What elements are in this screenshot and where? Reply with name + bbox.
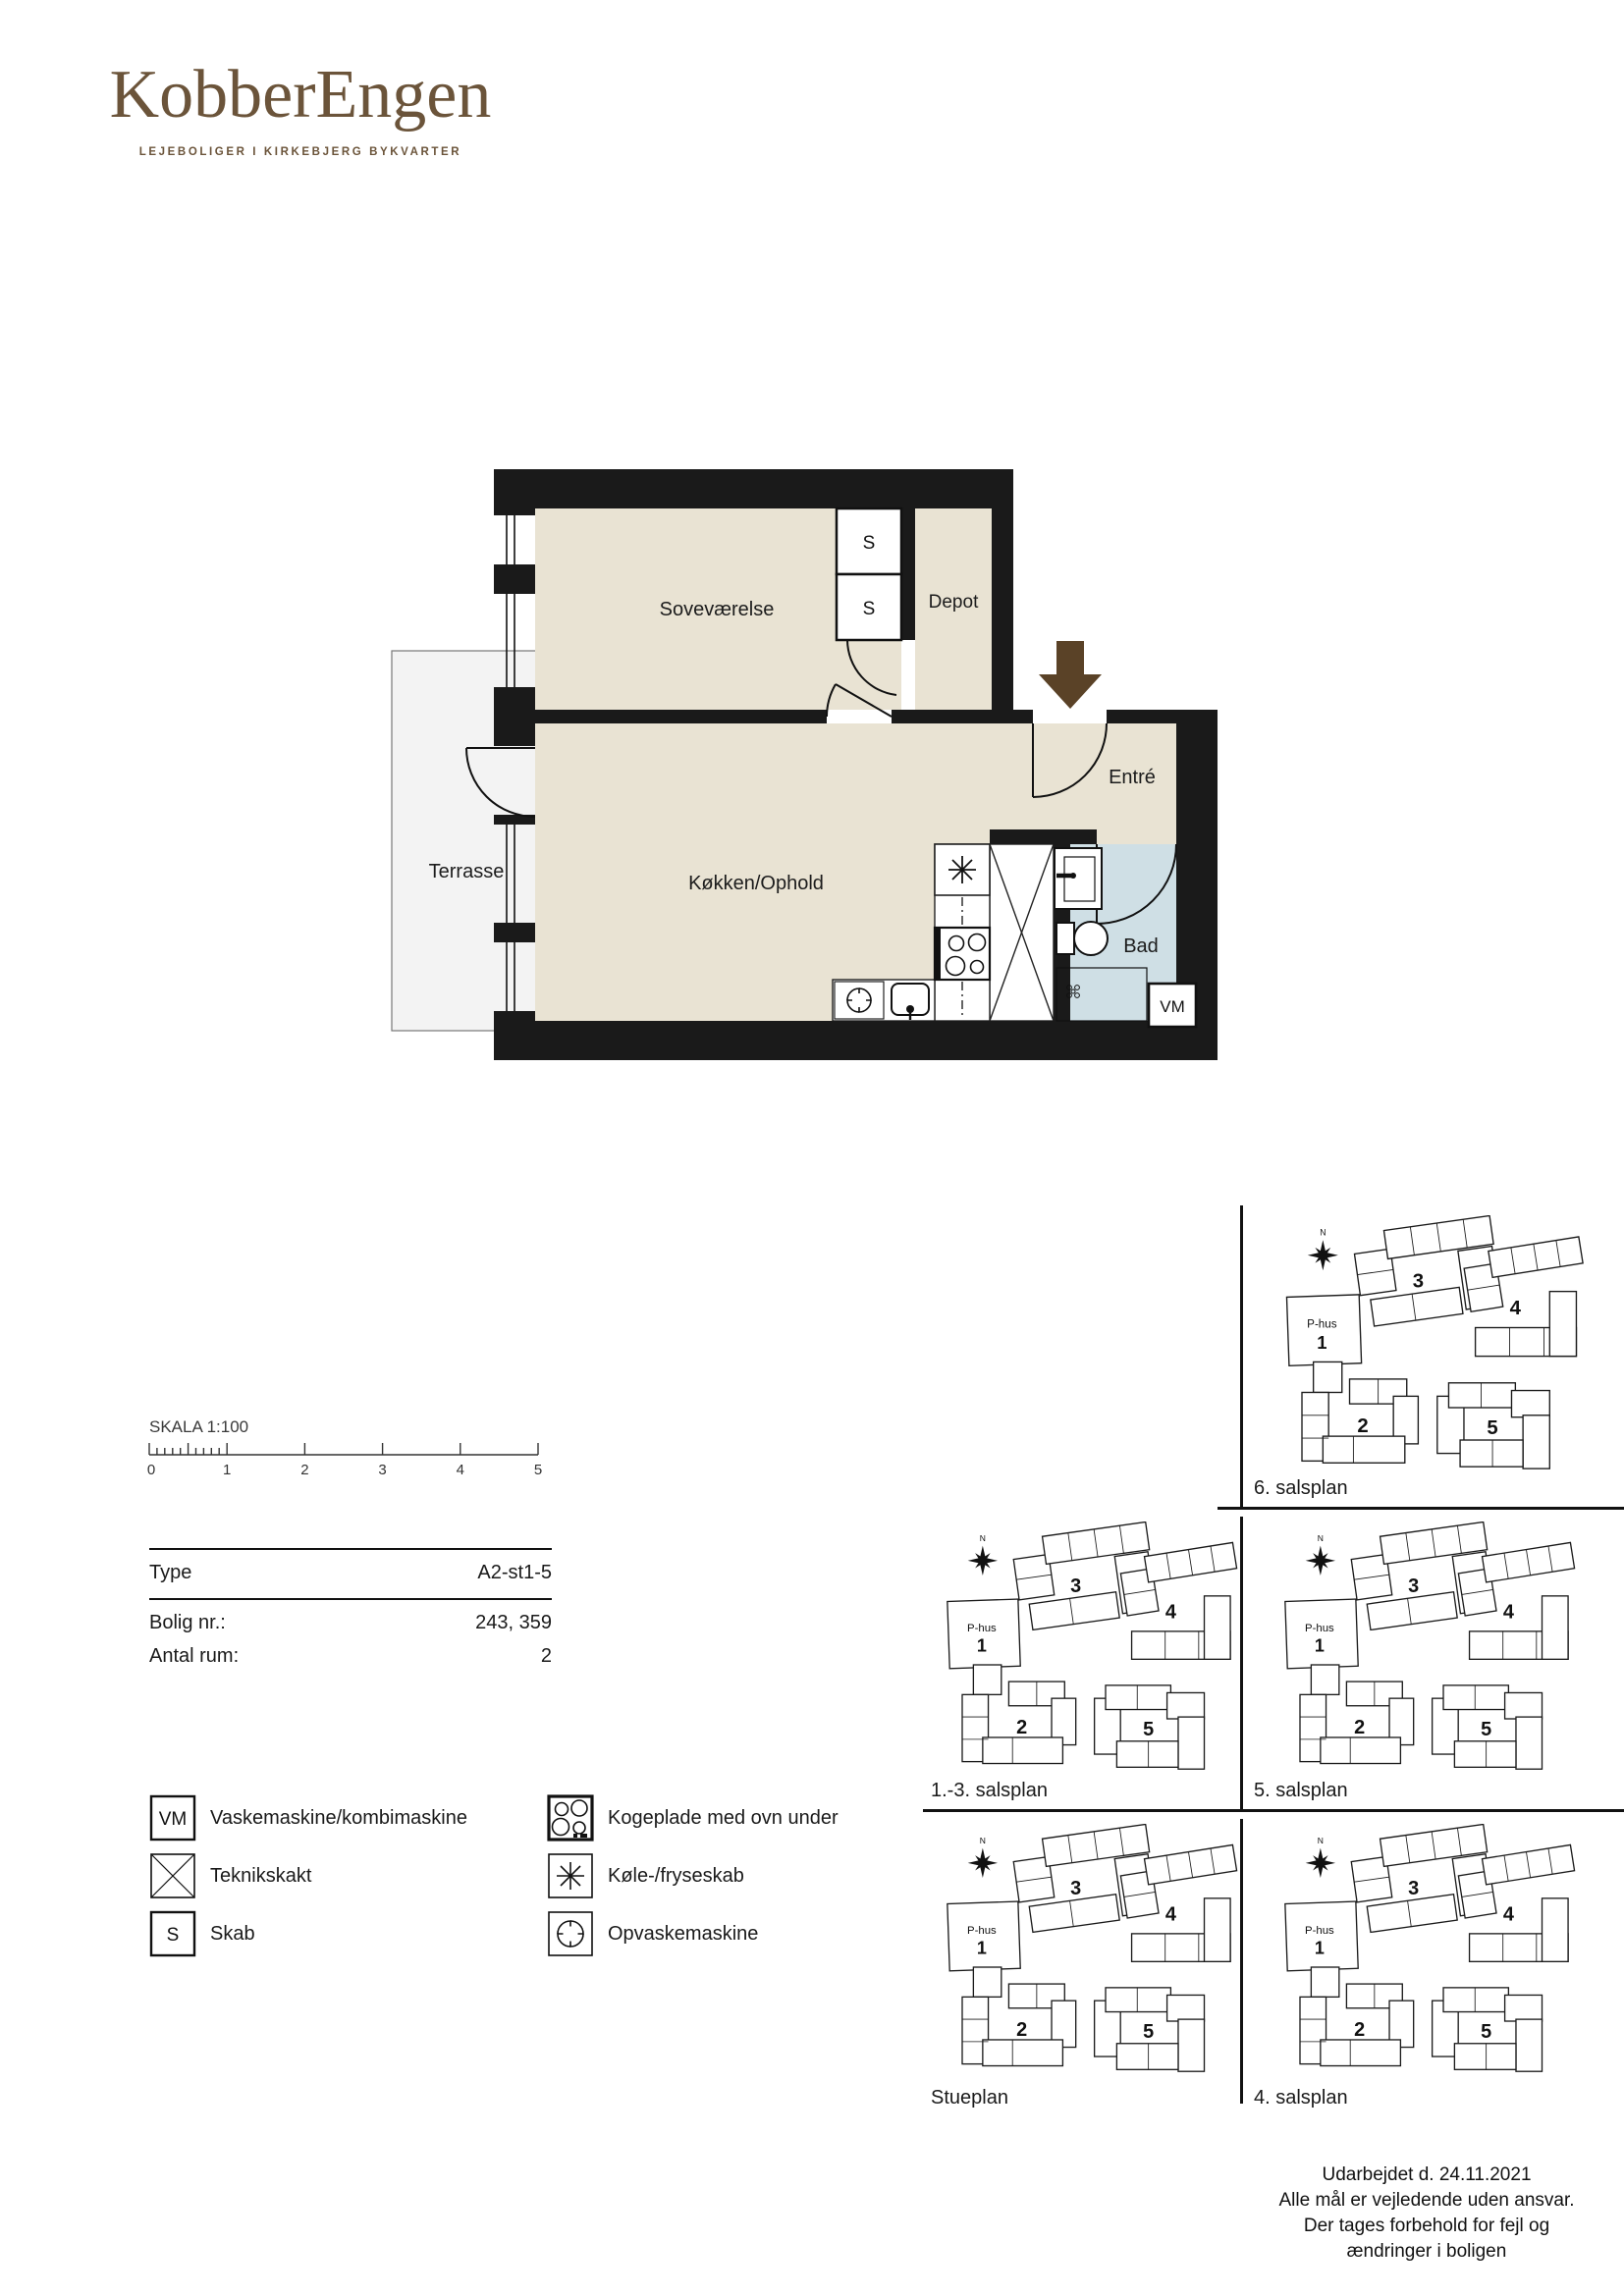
svg-text:4: 4 [457, 1462, 464, 1478]
bath-sink-icon [1055, 848, 1102, 909]
brand: KobberEngen LEJEBOLIGER I KIRKEBJERG BYK… [98, 57, 503, 158]
scale-label: SKALA 1:100 [149, 1417, 248, 1437]
footer-line: Der tages forbehold for fejl og [1230, 2214, 1623, 2239]
entry-arrow-icon [1039, 641, 1102, 709]
brand-tagline: LEJEBOLIGER I KIRKEBJERG BYKVARTER [98, 146, 503, 158]
wardrobes: S S [837, 508, 901, 640]
siteplan-map-5 [1269, 1522, 1583, 1773]
scale-ruler: 0 1 2 3 4 5 [145, 1443, 558, 1486]
svg-text:3: 3 [378, 1462, 386, 1478]
siteplan-map-4 [1269, 1824, 1583, 2075]
svg-text:5: 5 [534, 1462, 542, 1478]
legend-item-washer: VM Vaskemaskine/kombimaskine [149, 1794, 467, 1842]
footer-line: Alle mål er vejledende uden ansvar. [1230, 2188, 1623, 2214]
svg-text:VM: VM [159, 1809, 188, 1830]
vm-label: VM [1160, 997, 1185, 1016]
siteplan-map-6 [1269, 1215, 1593, 1472]
info-value: A2-st1-5 [477, 1562, 552, 1584]
legend-label: Vaskemaskine/kombimaskine [210, 1807, 467, 1830]
legend-item-stove: Kogeplade med ovn under [547, 1794, 839, 1842]
legend-label: Teknikskakt [210, 1865, 311, 1888]
grid-divider [1240, 1205, 1243, 1509]
table-row: Type A2-st1-5 [149, 1562, 552, 1584]
siteplan-label: Stueplan [931, 2087, 1008, 2109]
info-label: Antal rum: [149, 1645, 239, 1668]
toilet-icon [1056, 922, 1108, 955]
info-value: 243, 359 [475, 1612, 552, 1634]
apartment-floorplan: S S [245, 432, 1237, 1080]
info-label: Type [149, 1562, 191, 1584]
svg-text:2: 2 [300, 1462, 308, 1478]
siteplan-label: 6. salsplan [1254, 1477, 1348, 1500]
washing-machine-box: VM [1149, 984, 1196, 1027]
depot-label: Depot [929, 592, 979, 613]
legend-label: Kogeplade med ovn under [608, 1807, 839, 1830]
legend-label: Køle-/fryseskab [608, 1865, 744, 1888]
vm-box-icon: VM [149, 1794, 196, 1842]
svg-text:S: S [167, 1925, 180, 1946]
legend-item-dishwasher: Opvaskemaskine [547, 1910, 758, 1957]
dishwasher-icon [835, 982, 884, 1019]
svg-text:1: 1 [223, 1462, 231, 1478]
bath-label: Bad [1123, 935, 1159, 957]
table-row: Bolig nr.: 243, 359 [149, 1612, 552, 1634]
floorplan-sheet: KobberEngen LEJEBOLIGER I KIRKEBJERG BYK… [0, 0, 1624, 2296]
footer-line: Udarbejdet d. 24.11.2021 [1230, 2163, 1623, 2188]
legend-label: Opvaskemaskine [608, 1923, 758, 1946]
legend-item-shaft: Teknikskakt [149, 1852, 311, 1899]
grid-divider [1218, 1507, 1624, 1510]
siteplan-label: 4. salsplan [1254, 2087, 1348, 2109]
grid-divider [923, 1809, 1624, 1812]
svg-text:0: 0 [147, 1462, 155, 1478]
entry-label: Entré [1109, 767, 1156, 788]
dishwasher-icon [547, 1910, 594, 1957]
crossed-box-icon [149, 1852, 196, 1899]
siteplan-label: 1.-3. salsplan [931, 1780, 1048, 1802]
s-box-icon: S [149, 1910, 196, 1957]
closet-s-label: S [863, 533, 876, 554]
footer-disclaimer: Udarbejdet d. 24.11.2021 Alle mål er vej… [1230, 2163, 1623, 2265]
siteplan-map-1-3 [931, 1522, 1245, 1773]
technical-shaft [990, 844, 1054, 1021]
ruler-tick-labels: 0 1 2 3 4 5 [147, 1462, 542, 1478]
brand-logo: KobberEngen [98, 57, 503, 133]
info-label: Bolig nr.: [149, 1612, 226, 1634]
legend-label: Skab [210, 1923, 255, 1946]
closet-s-label: S [863, 599, 876, 619]
stove-icon [935, 928, 990, 980]
sink-icon [892, 984, 929, 1020]
fridge-icon [547, 1852, 594, 1899]
stove-icon [547, 1794, 594, 1842]
siteplan-map-stue [931, 1824, 1245, 2075]
bedroom-label: Soveværelse [660, 599, 775, 620]
info-value: 2 [541, 1645, 552, 1668]
legend-item-closet: S Skab [149, 1910, 255, 1957]
footer-line: ændringer i boligen [1230, 2239, 1623, 2265]
kitchen-label: Køkken/Ophold [688, 873, 824, 894]
table-row: Antal rum: 2 [149, 1645, 552, 1668]
legend-item-fridge: Køle-/fryseskab [547, 1852, 744, 1899]
siteplan-label: 5. salsplan [1254, 1780, 1348, 1802]
terrace-label: Terrasse [429, 861, 505, 882]
